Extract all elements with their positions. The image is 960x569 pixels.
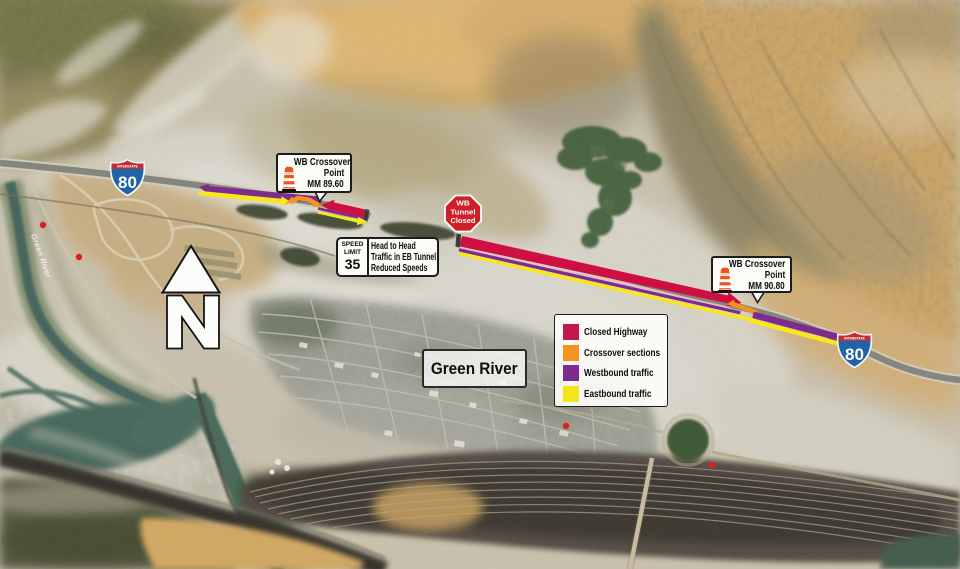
svg-text:INTERSTATE: INTERSTATE: [844, 337, 865, 341]
svg-text:80: 80: [118, 173, 137, 192]
svg-text:Tunnel: Tunnel: [451, 207, 476, 216]
svg-text:Closed: Closed: [451, 216, 476, 225]
svg-text:WB: WB: [456, 199, 470, 208]
svg-text:INTERSTATE: INTERSTATE: [117, 165, 138, 169]
svg-text:80: 80: [845, 345, 864, 364]
